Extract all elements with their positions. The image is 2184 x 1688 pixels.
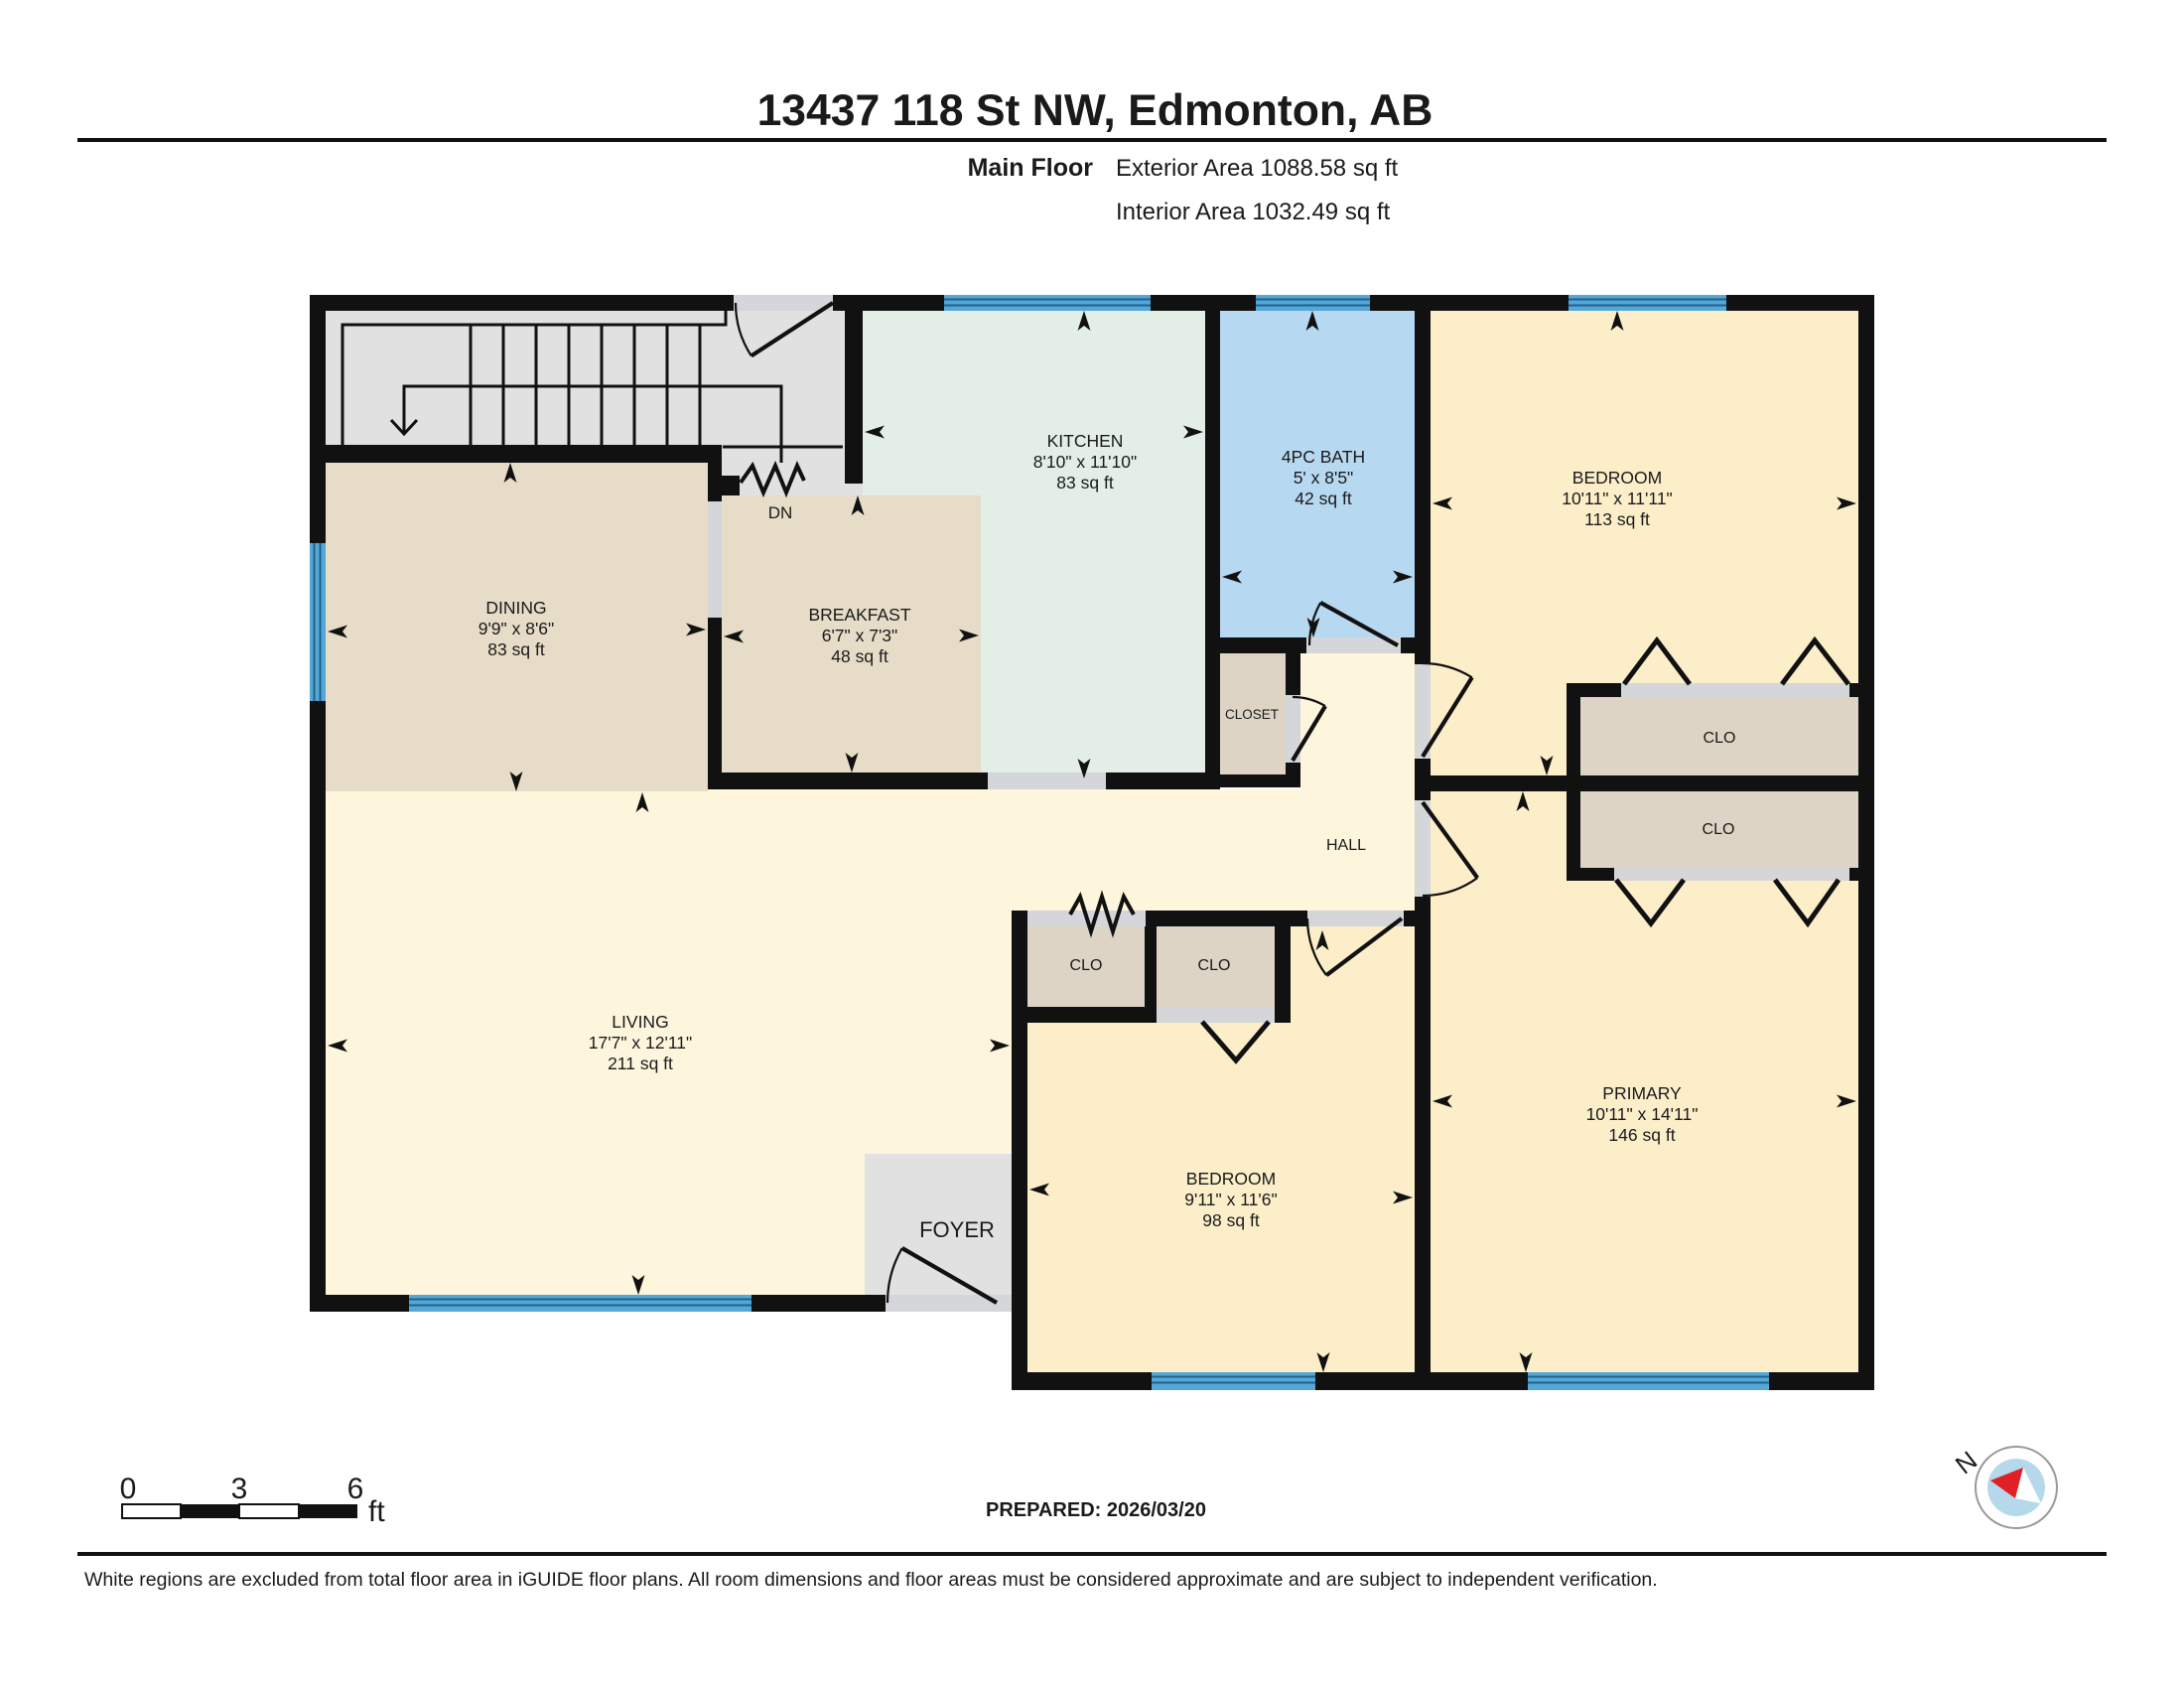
svg-text:9'11" x 11'6": 9'11" x 11'6" — [1184, 1190, 1277, 1209]
svg-text:48 sq ft: 48 sq ft — [831, 646, 888, 666]
svg-text:PREPARED: 2026/03/20: PREPARED: 2026/03/20 — [986, 1499, 1206, 1521]
svg-text:13437 118 St NW, Edmonton, AB: 13437 118 St NW, Edmonton, AB — [757, 86, 1433, 135]
svg-text:6: 6 — [347, 1473, 364, 1505]
svg-text:Main Floor: Main Floor — [968, 154, 1094, 182]
svg-text:83 sq ft: 83 sq ft — [1056, 473, 1114, 492]
svg-text:0: 0 — [120, 1473, 137, 1505]
svg-text:Exterior Area 1088.58 sq ft: Exterior Area 1088.58 sq ft — [1116, 155, 1399, 182]
svg-text:CLO: CLO — [1704, 730, 1736, 747]
svg-text:CLO: CLO — [1703, 821, 1735, 838]
svg-text:83 sq ft: 83 sq ft — [487, 639, 545, 659]
svg-text:98 sq ft: 98 sq ft — [1202, 1210, 1260, 1230]
svg-text:DINING: DINING — [485, 598, 546, 618]
svg-text:BEDROOM: BEDROOM — [1572, 468, 1662, 488]
svg-text:HALL: HALL — [1326, 837, 1366, 854]
svg-text:146 sq ft: 146 sq ft — [1608, 1125, 1675, 1145]
svg-text:42 sq ft: 42 sq ft — [1295, 489, 1352, 508]
svg-text:5' x 8'5": 5' x 8'5" — [1294, 468, 1354, 488]
svg-text:White regions are excluded fro: White regions are excluded from total fl… — [84, 1569, 1658, 1591]
svg-text:KITCHEN: KITCHEN — [1047, 431, 1124, 451]
svg-text:CLO: CLO — [1070, 957, 1103, 974]
svg-text:211 sq ft: 211 sq ft — [608, 1054, 673, 1073]
svg-text:3: 3 — [231, 1473, 248, 1505]
svg-text:9'9" x 8'6": 9'9" x 8'6" — [478, 619, 555, 638]
svg-text:Interior Area 1032.49 sq ft: Interior Area 1032.49 sq ft — [1116, 199, 1391, 225]
svg-text:6'7" x 7'3": 6'7" x 7'3" — [822, 626, 898, 645]
svg-text:PRIMARY: PRIMARY — [1602, 1083, 1682, 1103]
svg-text:BEDROOM: BEDROOM — [1186, 1169, 1276, 1189]
svg-text:DN: DN — [768, 503, 793, 522]
svg-text:CLOSET: CLOSET — [1225, 707, 1279, 722]
svg-text:ft: ft — [368, 1495, 385, 1528]
svg-text:FOYER: FOYER — [919, 1217, 995, 1242]
svg-text:113 sq ft: 113 sq ft — [1584, 509, 1650, 529]
svg-text:BREAKFAST: BREAKFAST — [808, 605, 910, 625]
svg-text:8'10" x 11'10": 8'10" x 11'10" — [1033, 452, 1137, 472]
svg-text:LIVING: LIVING — [612, 1012, 668, 1032]
svg-text:10'11" x 14'11": 10'11" x 14'11" — [1586, 1104, 1699, 1124]
svg-text:4PC BATH: 4PC BATH — [1282, 447, 1365, 467]
svg-text:10'11" x 11'11": 10'11" x 11'11" — [1562, 489, 1673, 508]
svg-text:17'7" x 12'11": 17'7" x 12'11" — [589, 1033, 692, 1053]
svg-text:CLO: CLO — [1198, 957, 1231, 974]
